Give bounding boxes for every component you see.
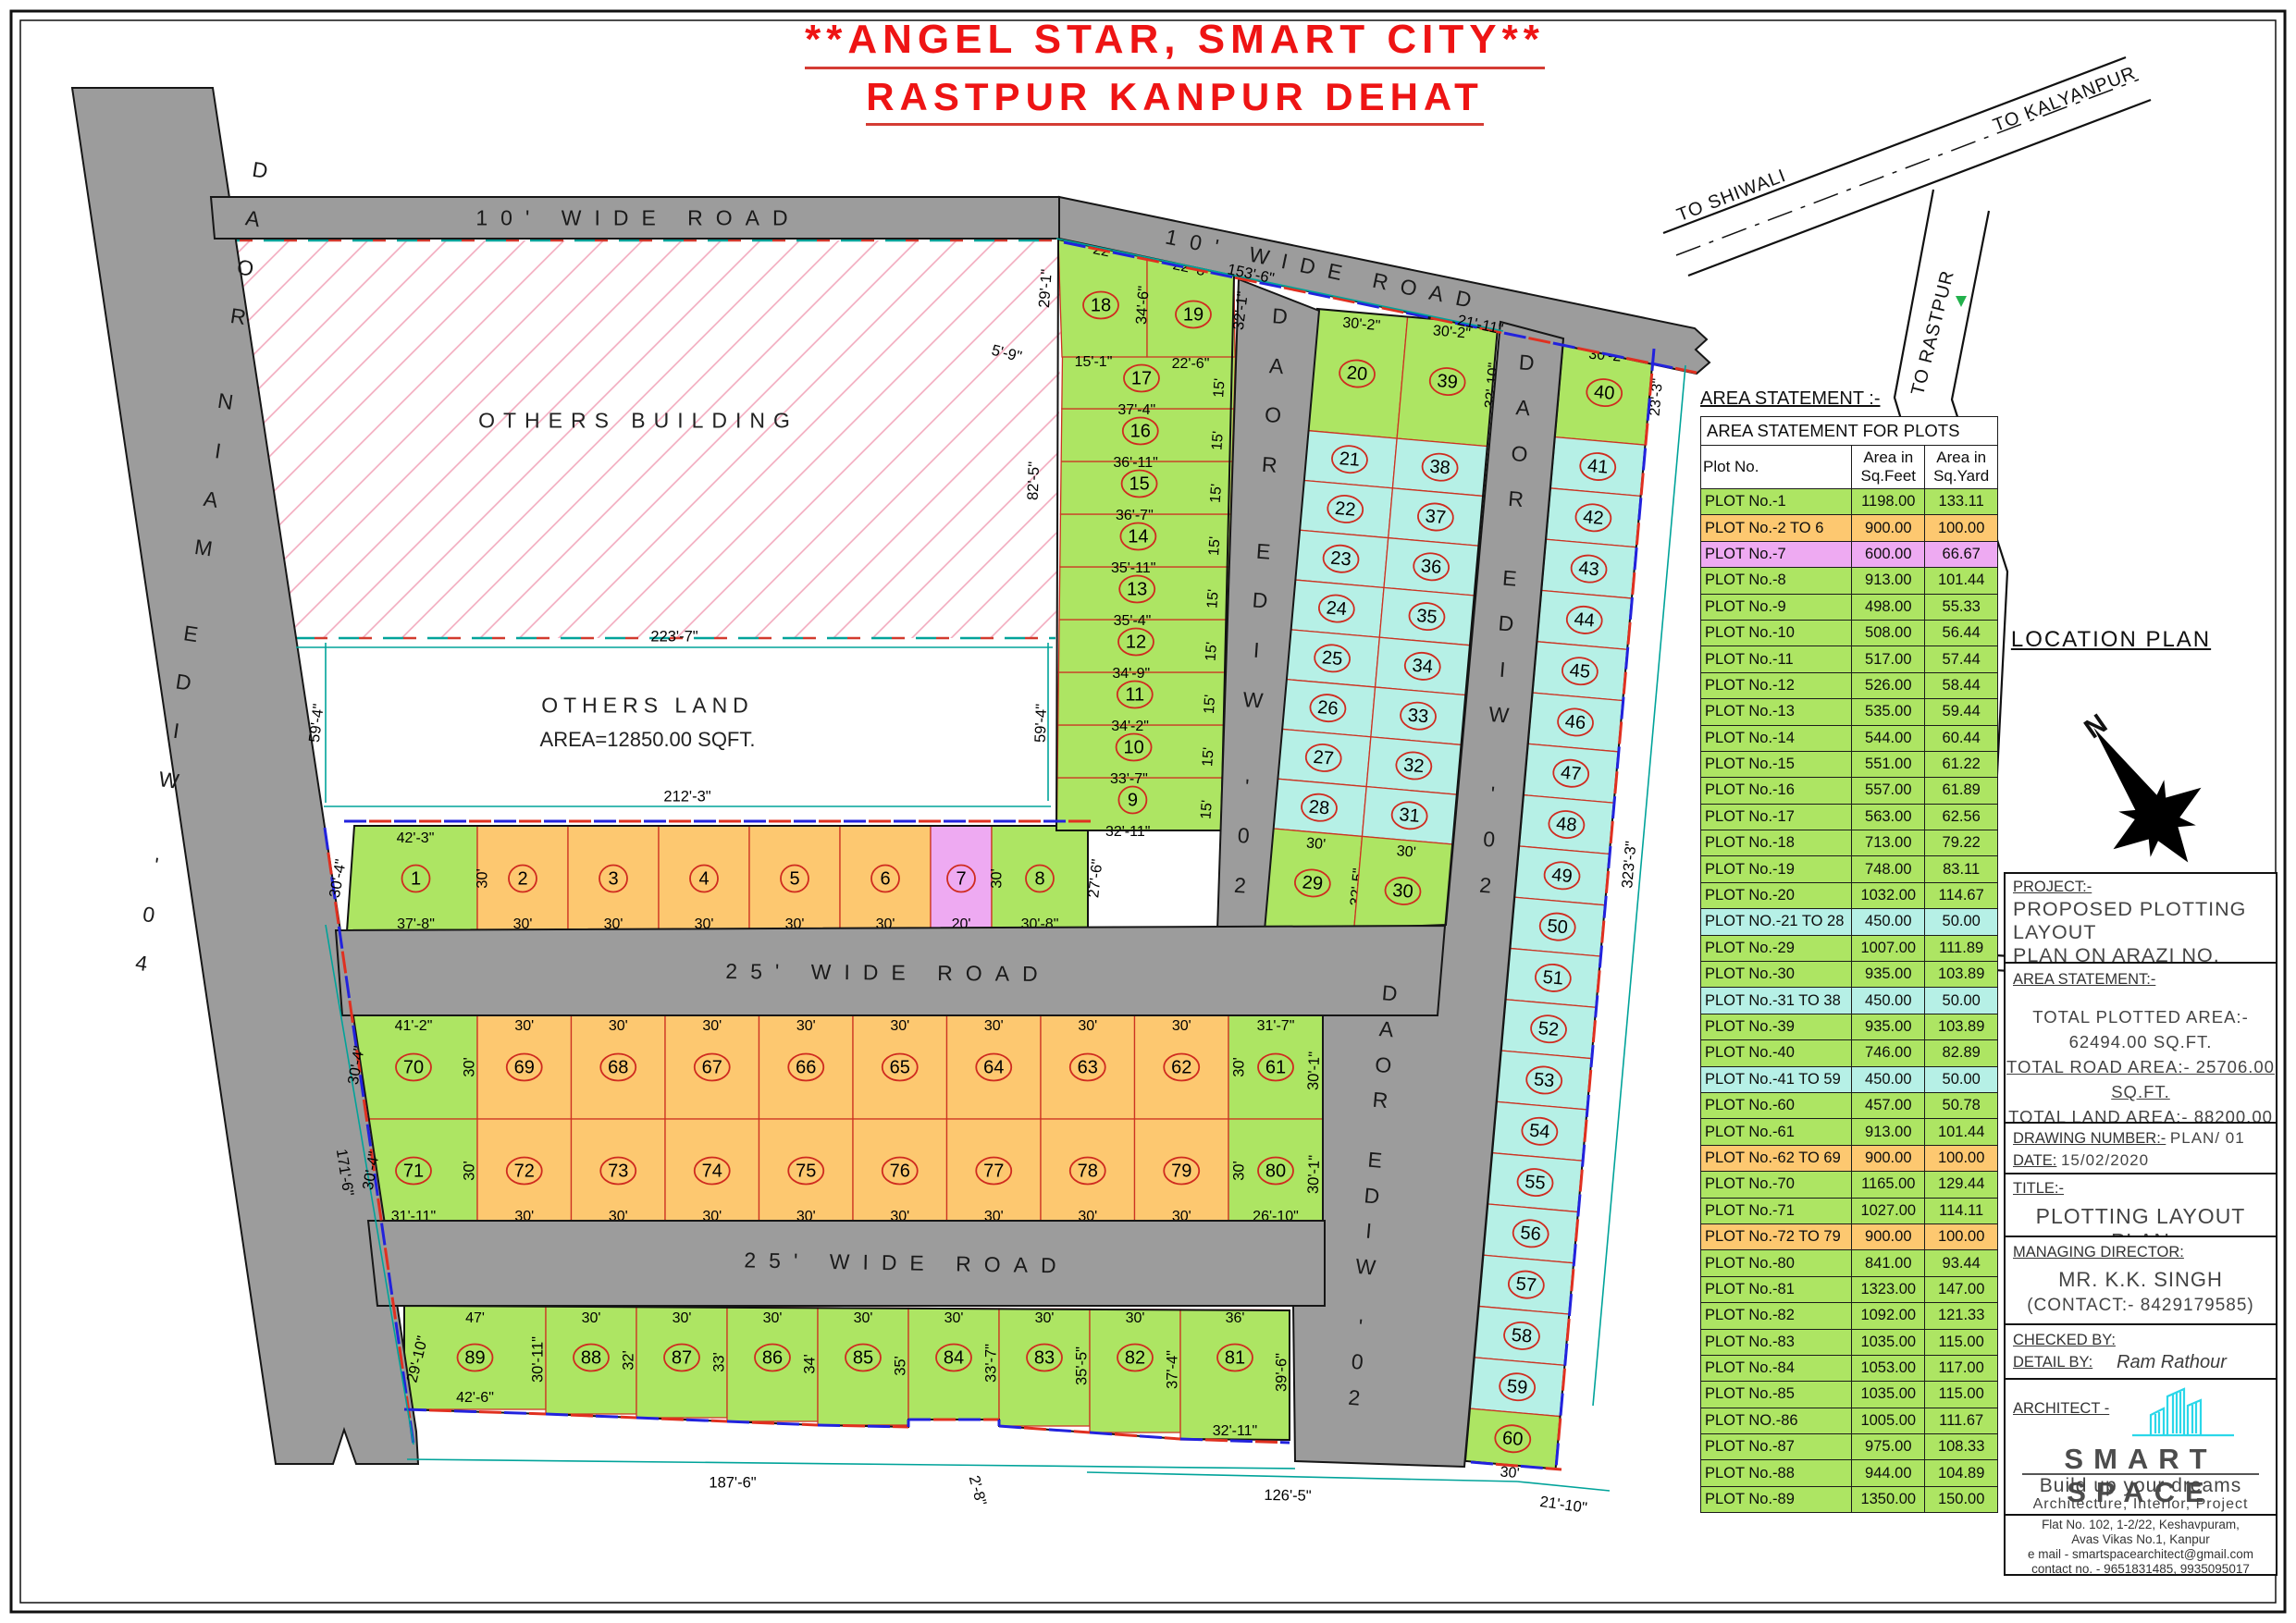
plot-number: 42	[1582, 507, 1604, 529]
dimension-label: 42'-6"	[456, 1390, 494, 1406]
area-statement-table: AREA STATEMENT FOR PLOTSPlot No.Area in …	[1700, 416, 1998, 1513]
dimension-label: 15'	[1202, 694, 1218, 714]
plot-number: 74	[702, 1161, 722, 1181]
date-value: 15/02/2020	[2061, 1151, 2149, 1169]
sqfeet-cell: 563.00	[1852, 804, 1925, 830]
address-line: e mail - smartspacearchitect@gmail.com	[2006, 1547, 2276, 1562]
table-row: PLOT No.-80841.0093.44	[1701, 1250, 1998, 1276]
sqyard-cell: 129.44	[1925, 1172, 1998, 1198]
drawing-number-label: DRAWING NUMBER:-	[2013, 1130, 2166, 1147]
area-statement-label: AREA STATEMENT:-	[2013, 971, 2155, 989]
site-boundary-line	[404, 1409, 546, 1414]
table-header-cell: Area in Sq.Feet	[1852, 446, 1925, 489]
sqfeet-cell: 944.00	[1852, 1460, 1925, 1486]
address-line: Avas Vikas No.1, Kanpur	[2006, 1532, 2276, 1547]
sqfeet-cell: 841.00	[1852, 1250, 1925, 1276]
plot-no-cell: PLOT No.-89	[1701, 1486, 1852, 1512]
table-row: PLOT No.-811323.00147.00	[1701, 1276, 1998, 1302]
plot-number: 33	[1407, 706, 1429, 728]
plot-no-cell: PLOT No.-88	[1701, 1460, 1852, 1486]
dimension-label: 30'	[1126, 1310, 1145, 1326]
plot-no-cell: PLOT No.-18	[1701, 830, 1852, 856]
plot-no-cell: PLOT No.-81	[1701, 1276, 1852, 1302]
title-box: TITLE:- PLOTTING LAYOUT PLAN	[2004, 1173, 2277, 1239]
dimension-label: 30'	[890, 1018, 909, 1034]
dimension-label: 30'	[461, 1161, 477, 1181]
sqfeet-cell: 746.00	[1852, 1040, 1925, 1066]
plot-no-cell: PLOT No.-40	[1701, 1040, 1852, 1066]
plot-number: 4	[698, 868, 709, 889]
dimension-label: 27'-6"	[1085, 858, 1105, 899]
detail-by-label: DETAIL BY:	[2013, 1354, 2092, 1371]
table-row: PLOT No.-821092.00121.33	[1701, 1303, 1998, 1329]
plot-no-cell: PLOT No.-10	[1701, 620, 1852, 646]
table-header-cell: Area in Sq.Yard	[1925, 446, 1998, 489]
dimension-label: 59'-4"	[306, 703, 327, 744]
dimension-label: 34'	[801, 1354, 818, 1374]
sqyard-cell: 60.44	[1925, 725, 1998, 751]
date-label: DATE:	[2013, 1152, 2056, 1169]
plot-number: 72	[514, 1161, 535, 1181]
dimension-label: 15'	[1204, 641, 1220, 661]
smart-space-logo-icon	[2130, 1383, 2241, 1441]
table-row: PLOT No.-851035.00115.00	[1701, 1382, 1998, 1408]
plot-no-cell: PLOT No.-41 TO 59	[1701, 1066, 1852, 1092]
plot-number: 69	[514, 1057, 535, 1077]
table-row: PLOT No.-18713.0079.22	[1701, 830, 1998, 856]
table-row: PLOT No.-11517.0057.44	[1701, 646, 1998, 672]
firm-address: Flat No. 102, 1-2/22, Keshavpuram,Avas V…	[2006, 1518, 2276, 1577]
dimension-label: 15'	[1208, 483, 1225, 503]
sqyard-cell: 82.89	[1925, 1040, 1998, 1066]
plot-number: 50	[1547, 916, 1569, 938]
table-row: PLOT No.-891350.00150.00	[1701, 1486, 1998, 1512]
dimension-label: 15'	[1206, 535, 1223, 556]
drawing-number-box: DRAWING NUMBER:- PLAN/ 01 DATE: 15/02/20…	[2004, 1122, 2277, 1176]
plot-no-cell: PLOT No.-9	[1701, 594, 1852, 620]
sqfeet-cell: 713.00	[1852, 830, 1925, 856]
plot-number: 89	[464, 1347, 485, 1368]
sqyard-cell: 100.00	[1925, 1145, 1998, 1171]
compass-star	[2050, 696, 2232, 892]
dimension-label: 323'-3"	[1619, 841, 1639, 890]
sqfeet-cell: 1005.00	[1852, 1408, 1925, 1433]
dimension-label: 35'	[892, 1356, 908, 1376]
plot-number: 23	[1329, 548, 1352, 571]
dimension-label: 15'	[1198, 799, 1215, 819]
table-header-cell: Plot No.	[1701, 446, 1852, 489]
managing-director-name: MR. K.K. SINGH	[2006, 1268, 2276, 1292]
table-row: PLOT NO.-861005.00111.67	[1701, 1408, 1998, 1433]
dimension-label: 21'-10"	[1538, 1494, 1587, 1517]
others-land-area-label: AREA=12850.00 SQFT.	[540, 728, 756, 752]
architect-label: ARCHITECT -	[2013, 1400, 2109, 1418]
checked-by-box: CHECKED BY: DETAIL BY: Ram Rathour	[2004, 1323, 2277, 1382]
others-land-label: OTHERS LAND	[541, 694, 754, 719]
plot-number: 29	[1302, 872, 1324, 894]
plot-number: 60	[1501, 1428, 1524, 1450]
dimension-label: 30'	[984, 1018, 1004, 1034]
sqfeet-cell: 975.00	[1852, 1434, 1925, 1460]
plot-number: 15	[1129, 473, 1149, 494]
dimension-label: 30'	[1230, 1057, 1247, 1077]
plot-number: 43	[1578, 558, 1600, 580]
sqyard-cell: 103.89	[1925, 1014, 1998, 1039]
dim-line	[407, 1459, 1295, 1469]
address-line: Flat No. 102, 1-2/22, Keshavpuram,	[2006, 1518, 2276, 1532]
sqfeet-cell: 1032.00	[1852, 882, 1925, 908]
compass-icon	[2050, 696, 2232, 892]
managing-director-label: MANAGING DIRECTOR:	[2013, 1244, 2184, 1261]
plot-number: 51	[1542, 967, 1564, 990]
table-row: PLOT No.-711027.00114.11	[1701, 1198, 1998, 1223]
sqyard-cell: 55.33	[1925, 594, 1998, 620]
dimension-label: 32'-11"	[1213, 1423, 1257, 1439]
dimension-label: 30'-1"	[1305, 1155, 1323, 1195]
table-row: PLOT No.-10508.0056.44	[1701, 620, 1998, 646]
plot-no-cell: PLOT No.-83	[1701, 1329, 1852, 1355]
plot-number: 63	[1078, 1057, 1098, 1077]
plot-number: 88	[581, 1347, 601, 1368]
table-title-row: AREA STATEMENT FOR PLOTS	[1701, 417, 1998, 446]
dimension-label: 30'	[1230, 1161, 1247, 1181]
plot-number: 27	[1313, 747, 1335, 769]
table-row: PLOT No.-17563.0062.56	[1701, 804, 1998, 830]
plot-number: 71	[403, 1161, 424, 1181]
table-row: PLOT No.-16557.0061.89	[1701, 778, 1998, 804]
sqfeet-cell: 450.00	[1852, 909, 1925, 935]
plot-number: 48	[1555, 814, 1577, 836]
title-line1: **ANGEL STAR, SMART CITY**	[805, 17, 1545, 69]
plot-number: 84	[944, 1347, 964, 1368]
sqfeet-cell: 935.00	[1852, 962, 1925, 988]
plot-number: 32	[1402, 755, 1425, 777]
sqyard-cell: 147.00	[1925, 1276, 1998, 1302]
plot-number: 62	[1171, 1057, 1191, 1077]
plot-number: 34	[1412, 656, 1434, 678]
plot-number: 1	[411, 868, 421, 889]
dimension-label: 36'	[1226, 1310, 1245, 1326]
plot-no-cell: PLOT No.-12	[1701, 672, 1852, 698]
dimension-label: 15'	[1200, 746, 1216, 767]
plot-number: 41	[1586, 456, 1609, 478]
plot-number: 45	[1569, 660, 1591, 682]
table-row: PLOT No.-14544.0060.44	[1701, 725, 1998, 751]
plot-number: 44	[1574, 609, 1596, 632]
others-building-area	[219, 240, 1062, 638]
sqyard-cell: 83.11	[1925, 856, 1998, 882]
sqyard-cell: 101.44	[1925, 568, 1998, 594]
sqfeet-cell: 1027.00	[1852, 1198, 1925, 1223]
table-row: PLOT No.-19748.0083.11	[1701, 856, 1998, 882]
sqyard-cell: 101.44	[1925, 1119, 1998, 1145]
table-title: AREA STATEMENT FOR PLOTS	[1701, 417, 1998, 446]
plot-no-cell: PLOT No.-80	[1701, 1250, 1852, 1276]
plot-number: 49	[1550, 865, 1573, 887]
road-label-road-10-top: 10' WIDE ROAD	[475, 206, 800, 231]
detail-by-value: Ram Rathour	[2117, 1352, 2227, 1373]
dimension-label: 30'	[673, 1310, 692, 1326]
table-row: PLOT No.-7600.0066.67	[1701, 541, 1998, 567]
plot-number: 2	[517, 868, 527, 889]
table-row: PLOT No.-13535.0059.44	[1701, 699, 1998, 725]
plot-no-cell: PLOT No.-72 TO 79	[1701, 1223, 1852, 1249]
sqfeet-cell: 1035.00	[1852, 1329, 1925, 1355]
dimension-label: 33'-7"	[982, 1344, 999, 1383]
sqfeet-cell: 1007.00	[1852, 935, 1925, 961]
dimension-label: 15'-1"	[1075, 354, 1113, 370]
location-plan-heading: LOCATION PLAN	[2011, 627, 2211, 653]
plot-no-cell: PLOT No.-70	[1701, 1172, 1852, 1198]
sqyard-cell: 103.89	[1925, 962, 1998, 988]
table-row: PLOT No.-88944.00104.89	[1701, 1460, 1998, 1486]
plot-number: 70	[403, 1057, 424, 1077]
title-line2: RASTPUR KANPUR DEHAT	[866, 75, 1484, 126]
plot-number: 22	[1334, 498, 1356, 521]
plot-number: 14	[1128, 526, 1148, 547]
managing-director-box: MANAGING DIRECTOR: MR. K.K. SINGH (CONTA…	[2004, 1236, 2277, 1327]
plot-number: 5	[789, 868, 799, 889]
table-row: PLOT No.-30935.00103.89	[1701, 962, 1998, 988]
plot-number: 83	[1034, 1347, 1055, 1368]
sqyard-cell: 66.67	[1925, 541, 1998, 567]
plot-no-cell: PLOT No.-19	[1701, 856, 1852, 882]
sqyard-cell: 114.11	[1925, 1198, 1998, 1223]
plot-number: 53	[1533, 1069, 1555, 1091]
address-line: contact no. - 9651831485, 9935095017	[2006, 1562, 2276, 1577]
table-header-row: Plot No.Area in Sq.FeetArea in Sq.Yard	[1701, 446, 1998, 489]
sqfeet-cell: 450.00	[1852, 1066, 1925, 1092]
dimension-label: 30'-1"	[1305, 1051, 1323, 1091]
plot-no-cell: PLOT No.-8	[1701, 568, 1852, 594]
firm-tagline: Build up your dreams	[2006, 1475, 2276, 1497]
plot-number: 87	[672, 1347, 692, 1368]
others-building-label: OTHERS BUILDING	[478, 409, 798, 434]
plot-no-cell: PLOT No.-85	[1701, 1382, 1852, 1408]
plot-number: 86	[762, 1347, 783, 1368]
table-row: PLOT No.-291007.00111.89	[1701, 935, 1998, 961]
table-row: PLOT No.-11198.00133.11	[1701, 489, 1998, 515]
plot-number: 77	[983, 1161, 1004, 1181]
sqfeet-cell: 600.00	[1852, 541, 1925, 567]
drawing-sheet: 137'-8"42'-3"230'330'430'530'630'720'830…	[0, 0, 2296, 1623]
plot-number: 54	[1528, 1121, 1550, 1143]
plot-number: 16	[1130, 421, 1151, 441]
plot-number: 55	[1524, 1172, 1546, 1194]
dimension-label: 34'-6"	[1133, 285, 1153, 325]
dimension-label: 31'-7"	[1257, 1018, 1295, 1034]
table-row: PLOT No.-72 TO 79900.00100.00	[1701, 1223, 1998, 1249]
plot-number: 25	[1321, 647, 1343, 670]
dimension-label: 30'	[461, 1057, 477, 1077]
plot-number: 18	[1091, 295, 1111, 315]
plot-number: 78	[1078, 1161, 1098, 1181]
plot-number: 40	[1593, 382, 1615, 404]
plot-number: 6	[880, 868, 890, 889]
plot-number: 26	[1316, 697, 1339, 719]
plot-number: 65	[890, 1057, 910, 1077]
sqyard-cell: 114.67	[1925, 882, 1998, 908]
plot-number: 76	[890, 1161, 910, 1181]
dimension-label: 39'-6"	[1273, 1353, 1290, 1392]
sqyard-cell: 93.44	[1925, 1250, 1998, 1276]
dimension-label: 36'-7"	[1116, 508, 1154, 523]
dimension-label: 187'-6"	[709, 1474, 756, 1491]
plot-number: 79	[1171, 1161, 1191, 1181]
table-row: PLOT No.-701165.00129.44	[1701, 1172, 1998, 1198]
plot-no-cell: PLOT No.-1	[1701, 489, 1852, 515]
sqyard-cell: 57.44	[1925, 646, 1998, 672]
plot-number: 7	[956, 868, 966, 889]
project-box: PROJECT:- PROPOSED PLOTTING LAYOUTPLAN O…	[2004, 872, 2277, 965]
plot-number: 35	[1415, 606, 1438, 628]
table-row: PLOT NO.-21 TO 28450.0050.00	[1701, 909, 1998, 935]
dimension-label: 212'-3"	[663, 788, 710, 805]
dimension-label: 59'-4"	[1032, 704, 1050, 744]
plot-number: 24	[1326, 597, 1348, 620]
dimension-label: 35'-11"	[1111, 560, 1155, 576]
plot-number: 12	[1126, 632, 1146, 652]
plot-number: 56	[1520, 1223, 1542, 1245]
plot-number: 31	[1399, 805, 1421, 827]
sqyard-cell: 50.00	[1925, 909, 1998, 935]
sqfeet-cell: 498.00	[1852, 594, 1925, 620]
plot-number: 58	[1511, 1325, 1533, 1347]
plot-number: 67	[702, 1057, 722, 1077]
sqyard-cell: 108.33	[1925, 1434, 1998, 1460]
plot-number: 46	[1564, 711, 1586, 733]
table-row: PLOT No.-41 TO 59450.0050.00	[1701, 1066, 1998, 1092]
dim-line	[1087, 1472, 1517, 1482]
dimension-label: 30'	[763, 1310, 783, 1326]
sqyard-cell: 59.44	[1925, 699, 1998, 725]
dimension-label: 32'	[620, 1350, 636, 1371]
table-row: PLOT No.-60457.0050.78	[1701, 1092, 1998, 1118]
sqyard-cell: 133.11	[1925, 489, 1998, 515]
sqfeet-cell: 1092.00	[1852, 1303, 1925, 1329]
plot-number: 8	[1034, 868, 1044, 889]
plot-no-cell: PLOT No.-16	[1701, 778, 1852, 804]
table-row: PLOT No.-87975.00108.33	[1701, 1434, 1998, 1460]
dimension-label: 29'-1"	[1036, 268, 1055, 308]
sqfeet-cell: 935.00	[1852, 1014, 1925, 1039]
sqfeet-cell: 900.00	[1852, 1223, 1925, 1249]
plot-no-cell: PLOT No.-14	[1701, 725, 1852, 751]
plot-number: 61	[1265, 1057, 1286, 1077]
dimension-label: 37'-4"	[1117, 402, 1155, 418]
plot-number: 13	[1127, 579, 1147, 599]
dimension-label: 35'-4"	[1114, 613, 1152, 629]
dimension-label: 30'	[1078, 1018, 1097, 1034]
table-row: PLOT No.-201032.00114.67	[1701, 882, 1998, 908]
dimension-label: 30'	[514, 1018, 534, 1034]
sqfeet-cell: 1035.00	[1852, 1382, 1925, 1408]
sqfeet-cell: 1323.00	[1852, 1276, 1925, 1302]
sqfeet-cell: 913.00	[1852, 1119, 1925, 1145]
plot-number: 59	[1506, 1376, 1528, 1398]
sqyard-cell: 150.00	[1925, 1486, 1998, 1512]
sqyard-cell: 79.22	[1925, 830, 1998, 856]
dimension-label: 15'	[1204, 588, 1221, 609]
sqyard-cell: 100.00	[1925, 515, 1998, 541]
area-total-line: TOTAL PLOTTED AREA:- 62494.00 SQ.FT.	[2006, 1004, 2276, 1054]
sqfeet-cell: 1053.00	[1852, 1355, 1925, 1381]
plot-no-cell: PLOT No.-87	[1701, 1434, 1852, 1460]
table-row: PLOT No.-841053.00117.00	[1701, 1355, 1998, 1381]
sqyard-cell: 58.44	[1925, 672, 1998, 698]
sqyard-cell: 115.00	[1925, 1329, 1998, 1355]
plot-no-cell: PLOT No.-62 TO 69	[1701, 1145, 1852, 1171]
plot-number: 47	[1560, 763, 1582, 785]
sqfeet-cell: 1198.00	[1852, 489, 1925, 515]
plot-no-cell: PLOT No.-15	[1701, 751, 1852, 777]
plot-number: 81	[1225, 1347, 1245, 1368]
plot-number: 75	[796, 1161, 816, 1181]
plot-no-cell: PLOT No.-17	[1701, 804, 1852, 830]
plot-no-cell: PLOT No.-82	[1701, 1303, 1852, 1329]
table-row: PLOT No.-15551.0061.22	[1701, 751, 1998, 777]
sqfeet-cell: 535.00	[1852, 699, 1925, 725]
road-label-road-25-a: 25' WIDE ROAD	[725, 959, 1050, 987]
table-row: PLOT No.-9498.0055.33	[1701, 594, 1998, 620]
plot-no-cell: PLOT No.-7	[1701, 541, 1852, 567]
sqfeet-cell: 551.00	[1852, 751, 1925, 777]
dimension-label: 35'-5"	[1073, 1346, 1090, 1385]
plot-no-cell: PLOT NO.-21 TO 28	[1701, 909, 1852, 935]
plot-no-cell: PLOT No.-60	[1701, 1092, 1852, 1118]
dimension-label: 30'	[1172, 1018, 1191, 1034]
managing-director-contact: (CONTACT:- 8429179585)	[2006, 1296, 2276, 1316]
area-totals-box: AREA STATEMENT:- TOTAL PLOTTED AREA:- 62…	[2004, 962, 2277, 1125]
table-row: PLOT No.-831035.00115.00	[1701, 1329, 1998, 1355]
dimension-label: 33'	[710, 1352, 727, 1372]
sqyard-cell: 111.67	[1925, 1408, 1998, 1433]
sqfeet-cell: 450.00	[1852, 988, 1925, 1014]
plot-number: 9	[1128, 790, 1138, 810]
plot-number: 68	[608, 1057, 628, 1077]
sqyard-cell: 111.89	[1925, 935, 1998, 961]
sqyard-cell: 61.22	[1925, 751, 1998, 777]
plot-number: 82	[1125, 1347, 1145, 1368]
table-row: PLOT No.-2 TO 6900.00100.00	[1701, 515, 1998, 541]
sqyard-cell: 50.00	[1925, 1066, 1998, 1092]
area-statement-heading: AREA STATEMENT :-	[1700, 388, 2002, 410]
sqyard-cell: 104.89	[1925, 1460, 1998, 1486]
direction-arrow-icon	[1956, 296, 1967, 307]
plot-no-cell: PLOT No.-13	[1701, 699, 1852, 725]
table-row: PLOT No.-61913.00101.44	[1701, 1119, 1998, 1145]
dimension-label: 30'	[702, 1018, 722, 1034]
plot-no-cell: PLOT No.-30	[1701, 962, 1852, 988]
plot-number: 19	[1183, 304, 1204, 325]
plot-no-cell: PLOT No.-31 TO 38	[1701, 988, 1852, 1014]
sqfeet-cell: 557.00	[1852, 778, 1925, 804]
dimension-label: 82'-5"	[1025, 461, 1043, 501]
plot-number: 64	[983, 1057, 1004, 1077]
dimension-label: 126'-5"	[1264, 1487, 1312, 1505]
sqyard-cell: 117.00	[1925, 1355, 1998, 1381]
plot-number: 37	[1425, 506, 1447, 528]
sqfeet-cell: 1350.00	[1852, 1486, 1925, 1512]
plot-no-cell: PLOT No.-84	[1701, 1355, 1852, 1381]
plot-number: 30	[1391, 880, 1413, 903]
sqfeet-cell: 1165.00	[1852, 1172, 1925, 1198]
plot-number: 3	[608, 868, 618, 889]
table-row: PLOT No.-12526.0058.44	[1701, 672, 1998, 698]
dimension-label: 42'-3"	[397, 830, 435, 846]
dimension-label: 30'	[988, 868, 1005, 889]
sqyard-cell: 61.89	[1925, 778, 1998, 804]
